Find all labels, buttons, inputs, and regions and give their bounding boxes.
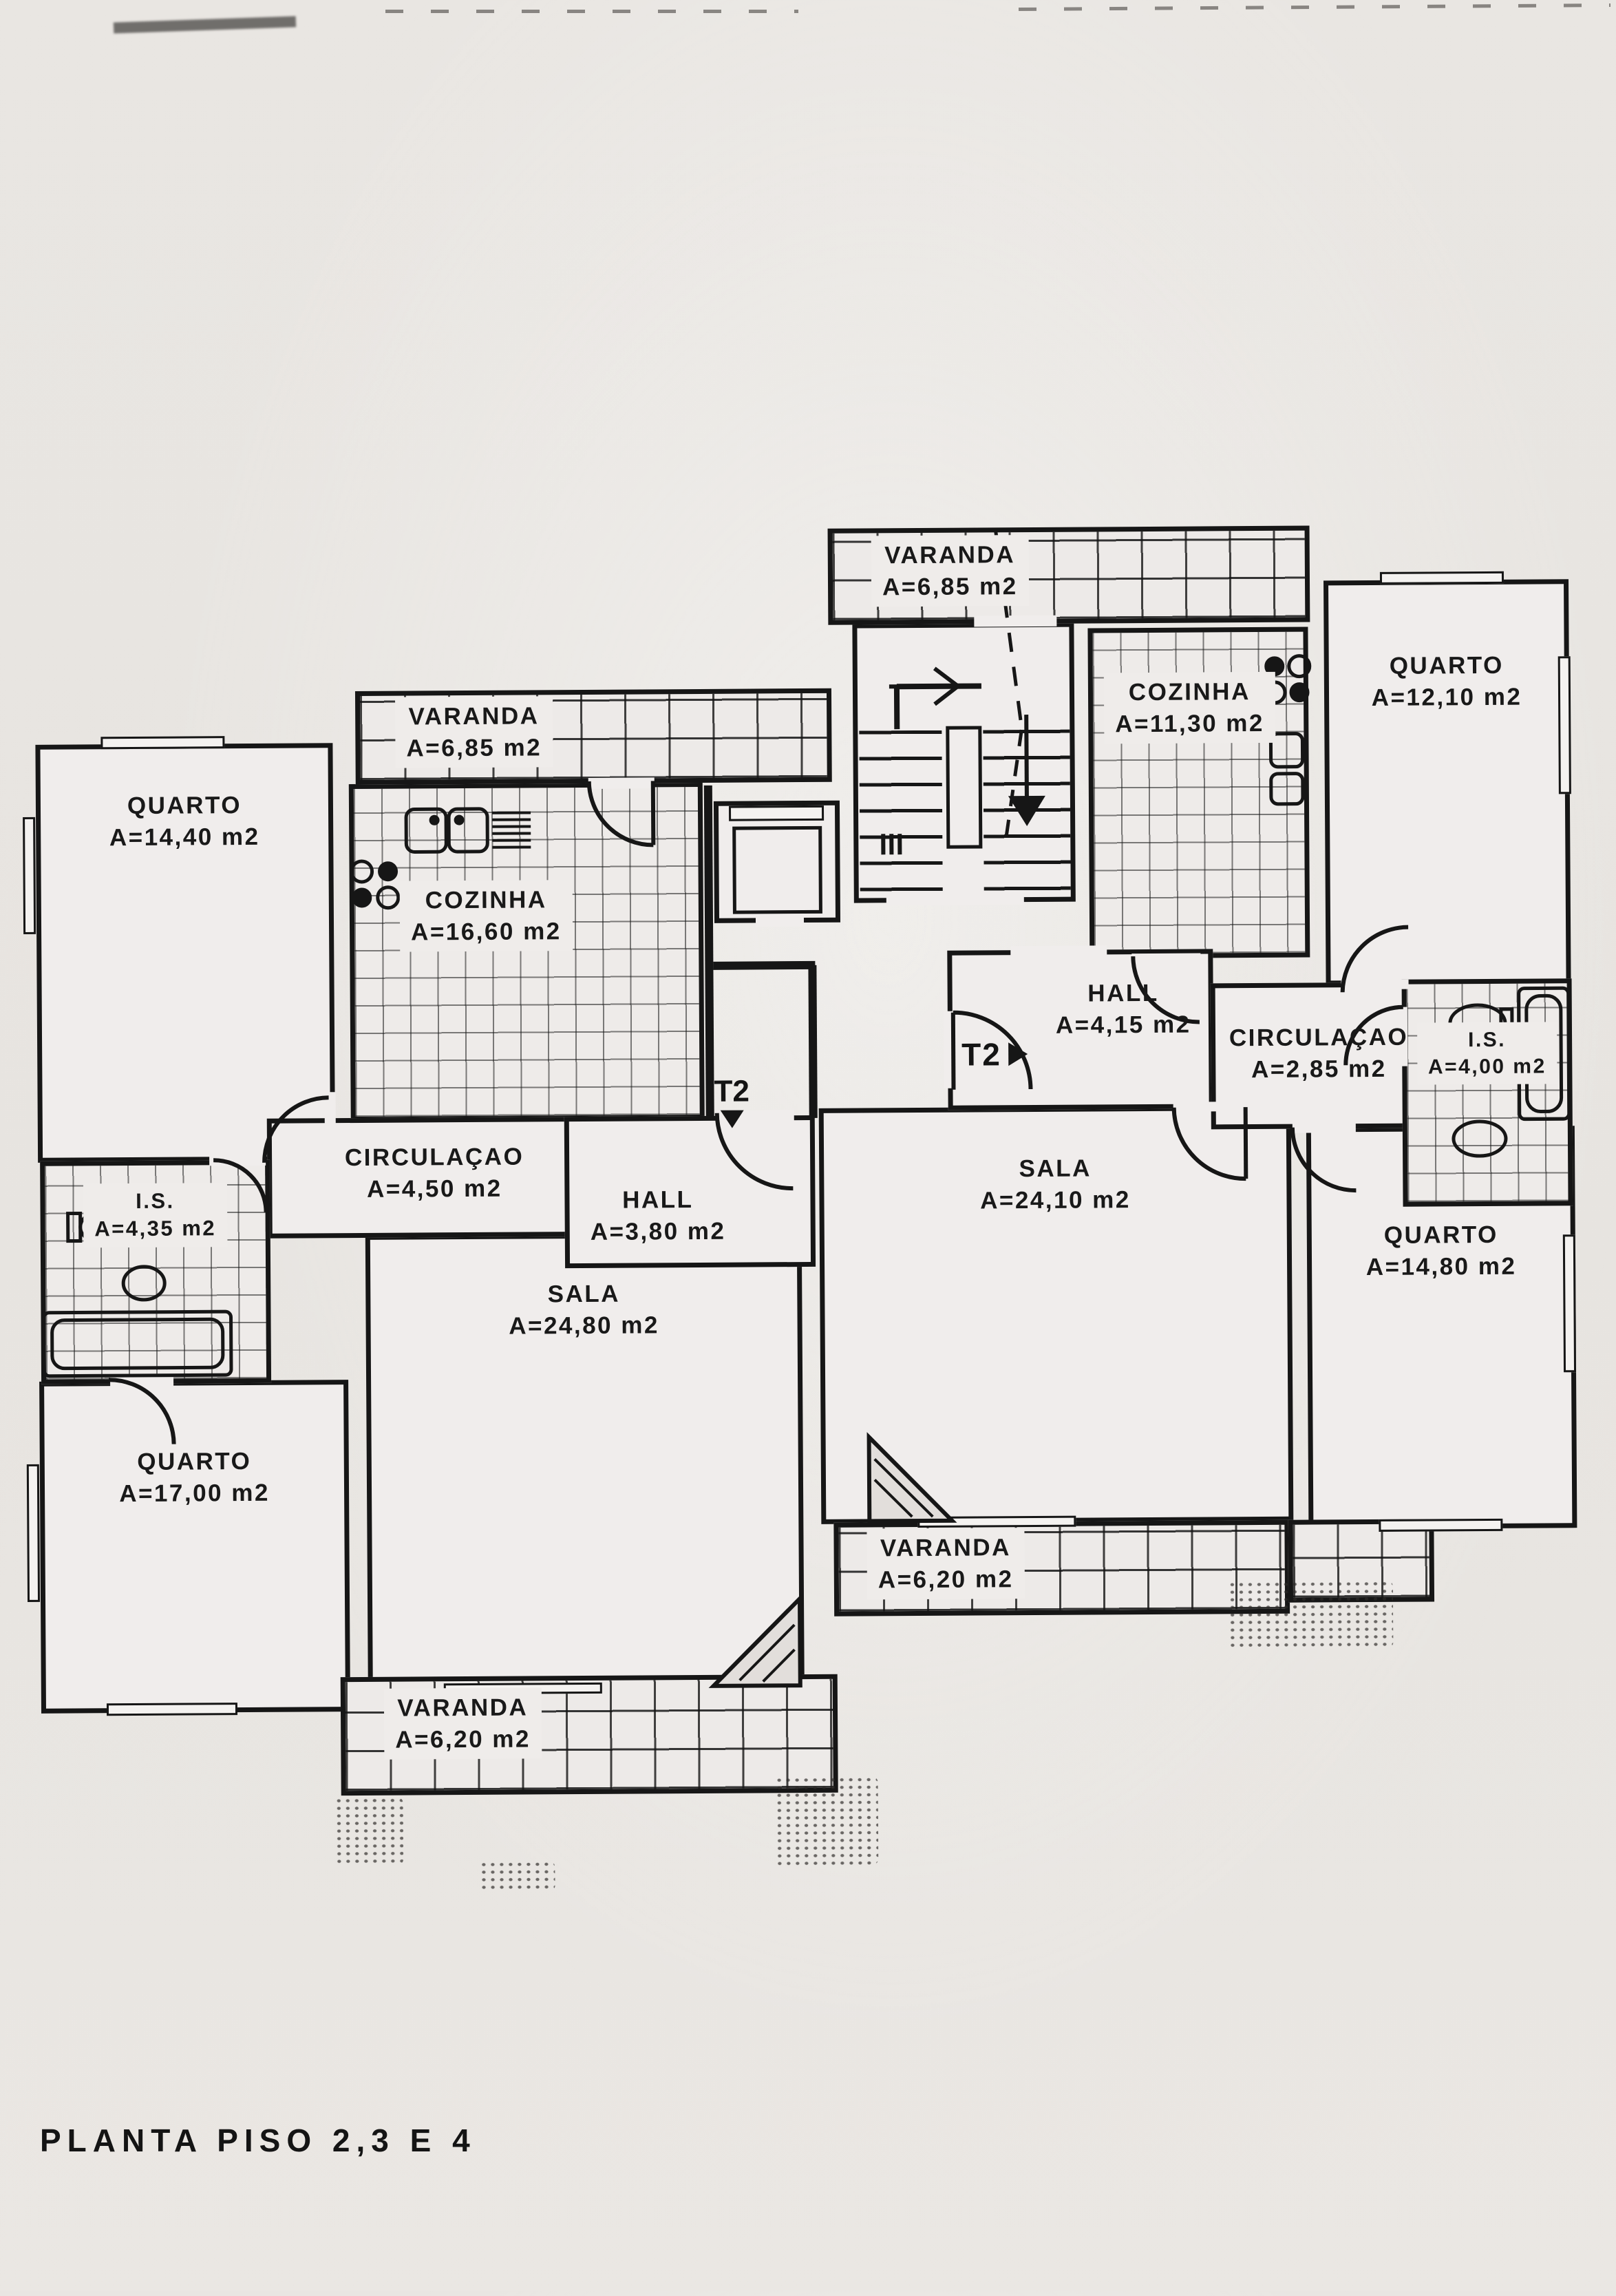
- elevator-cab: [732, 826, 822, 914]
- room-label: QUARTO A=12,10 m2: [1371, 650, 1522, 713]
- balcony-door: [917, 1516, 1076, 1528]
- door-opening: [974, 615, 1056, 627]
- arrow-down-icon: [720, 1110, 743, 1128]
- window: [1380, 571, 1504, 584]
- rubble-texture: [1228, 1580, 1394, 1650]
- room-area: A=4,15 m2: [1056, 1009, 1191, 1041]
- room-varanda-left: VARANDA A=6,85 m2: [355, 688, 832, 785]
- room-area: A=17,00 m2: [119, 1477, 270, 1509]
- rubble-texture: [479, 1860, 555, 1893]
- arrow-right-icon: [1008, 1042, 1028, 1066]
- room-varanda-top: VARANDA A=6,85 m2: [828, 526, 1310, 625]
- room-label: CIRCULAÇAO A=4,50 m2: [345, 1141, 524, 1205]
- room-sala-right: SALA A=24,10 m2: [819, 1106, 1294, 1524]
- room-quarto-nw: QUARTO A=14,40 m2: [35, 743, 335, 1163]
- room-is-right: I.S. A=4,00 m2: [1402, 978, 1573, 1207]
- window: [100, 736, 224, 749]
- room-area: A=12,10 m2: [1372, 681, 1522, 713]
- room-area: A=11,30 m2: [1115, 707, 1264, 739]
- room-name: COZINHA: [1115, 676, 1264, 708]
- stair-divider: [946, 726, 982, 848]
- door-opening: [209, 1156, 266, 1166]
- room-name: CIRCULAÇAO: [345, 1141, 524, 1174]
- room-area: A=4,00 m2: [1428, 1053, 1546, 1080]
- room-name: QUARTO: [1371, 650, 1522, 682]
- t2-label: T2: [961, 1035, 1001, 1073]
- room-area: A=16,60 m2: [411, 916, 562, 948]
- room-cozinha-right: COZINHA A=11,30 m2: [1087, 627, 1310, 959]
- window: [27, 1464, 40, 1602]
- window: [1563, 1234, 1576, 1372]
- room-area: A=2,85 m2: [1229, 1053, 1409, 1085]
- floor-plan: SALA A=24,80 m2 SALA A=24,10 m2 QUARTO A…: [0, 0, 1616, 2296]
- room-name: SALA: [509, 1278, 659, 1310]
- room-name: I.S.: [94, 1187, 216, 1215]
- plan-title: PLANTA PISO 2,3 E 4: [40, 2122, 476, 2159]
- window: [107, 1703, 237, 1716]
- room-is-left: I.S. A=4,35 m2: [40, 1160, 271, 1384]
- room-label: SALA A=24,10 m2: [980, 1152, 1131, 1216]
- door-opening: [756, 917, 804, 927]
- t2-label: T2: [714, 1075, 749, 1108]
- room-name: QUARTO: [119, 1446, 270, 1478]
- stair-flight-right: [983, 730, 1070, 896]
- room-label: COZINHA A=16,60 m2: [403, 883, 570, 949]
- room-label: I.S. A=4,35 m2: [86, 1186, 224, 1245]
- window: [23, 817, 36, 934]
- door-opening: [1293, 1123, 1356, 1133]
- room-quarto-sw: QUARTO A=17,00 m2: [39, 1380, 350, 1714]
- room-area: A=6,20 m2: [395, 1723, 531, 1756]
- room-label: HALL A=4,15 m2: [1056, 978, 1191, 1041]
- window: [1558, 656, 1571, 794]
- room-name: HALL: [590, 1184, 725, 1217]
- room-hall-right: HALL A=4,15 m2: [947, 949, 1213, 1110]
- room-label: SALA A=24,80 m2: [509, 1278, 659, 1341]
- room-label: VARANDA A=6,20 m2: [387, 1690, 539, 1756]
- room-label: HALL A=3,80 m2: [590, 1184, 725, 1247]
- room-area: A=4,35 m2: [94, 1215, 216, 1243]
- room-area: A=6,85 m2: [406, 732, 542, 764]
- room-label: QUARTO A=14,40 m2: [109, 790, 260, 853]
- rubble-texture: [334, 1797, 404, 1866]
- door-opening: [1131, 954, 1200, 964]
- core-wall: [704, 786, 714, 1117]
- door-opening: [944, 1011, 955, 1088]
- core-wall: [713, 961, 815, 970]
- core-wall: [808, 965, 817, 1118]
- room-name: CIRCULAÇAO: [1229, 1022, 1409, 1054]
- room-name: QUARTO: [1365, 1219, 1516, 1252]
- room-name: I.S.: [1428, 1026, 1546, 1053]
- door-opening: [588, 777, 655, 789]
- room-area: A=4,50 m2: [345, 1172, 524, 1205]
- room-label: CIRCULAÇAO A=2,85 m2: [1229, 1022, 1409, 1086]
- room-cozinha-left: COZINHA A=16,60 m2: [349, 782, 705, 1121]
- room-label: VARANDA A=6,20 m2: [869, 1530, 1021, 1597]
- room-label: I.S. A=4,00 m2: [1420, 1024, 1555, 1082]
- apartment-t2-marker-down: T2: [714, 1075, 749, 1128]
- stair-flight-left: [859, 730, 942, 894]
- room-area: A=6,20 m2: [878, 1563, 1014, 1596]
- room-name: VARANDA: [395, 1692, 531, 1724]
- room-label: VARANDA A=6,85 m2: [398, 699, 550, 765]
- room-label: COZINHA A=11,30 m2: [1107, 675, 1273, 741]
- scanned-floor-plan-page: { "title": "PLANTA PISO 2,3 E 4", "marke…: [0, 0, 1616, 2291]
- door-opening: [110, 1377, 173, 1387]
- room-circulacao-left: CIRCULAÇAO A=4,50 m2: [267, 1117, 602, 1239]
- room-name: VARANDA: [406, 700, 542, 733]
- room-area: A=3,80 m2: [591, 1215, 726, 1247]
- apartment-t2-marker-right: T2: [961, 1035, 1028, 1073]
- room-area: A=14,80 m2: [1366, 1250, 1517, 1283]
- door-opening: [1010, 945, 1107, 956]
- room-name: QUARTO: [109, 790, 260, 822]
- room-area: A=6,85 m2: [882, 571, 1018, 603]
- door-opening: [1341, 980, 1409, 990]
- room-area: A=14,40 m2: [109, 821, 260, 853]
- room-label: QUARTO A=14,80 m2: [1365, 1219, 1516, 1283]
- room-name: VARANDA: [878, 1532, 1013, 1564]
- door-opening: [577, 1165, 588, 1220]
- room-varanda-bottom-center: VARANDA A=6,20 m2: [833, 1520, 1290, 1616]
- door-opening: [886, 894, 1024, 905]
- window: [1379, 1519, 1502, 1532]
- room-hall-left: HALL A=3,80 m2: [564, 1115, 816, 1268]
- room-quarto-ne: QUARTO A=12,10 m2: [1323, 579, 1571, 985]
- room-area: A=24,80 m2: [509, 1309, 659, 1342]
- room-name: HALL: [1056, 978, 1191, 1010]
- door-opening: [1173, 1102, 1247, 1112]
- room-label: VARANDA A=6,85 m2: [874, 538, 1026, 604]
- room-name: VARANDA: [882, 539, 1018, 571]
- room-sala-left: SALA A=24,80 m2: [365, 1232, 805, 1691]
- room-name: COZINHA: [411, 884, 562, 916]
- room-name: SALA: [980, 1152, 1131, 1185]
- elevator-slot: [729, 805, 824, 821]
- room-label: QUARTO A=17,00 m2: [119, 1446, 270, 1509]
- room-area: A=24,10 m2: [980, 1184, 1131, 1217]
- rubble-texture: [775, 1776, 879, 1866]
- door-opening: [325, 1092, 337, 1158]
